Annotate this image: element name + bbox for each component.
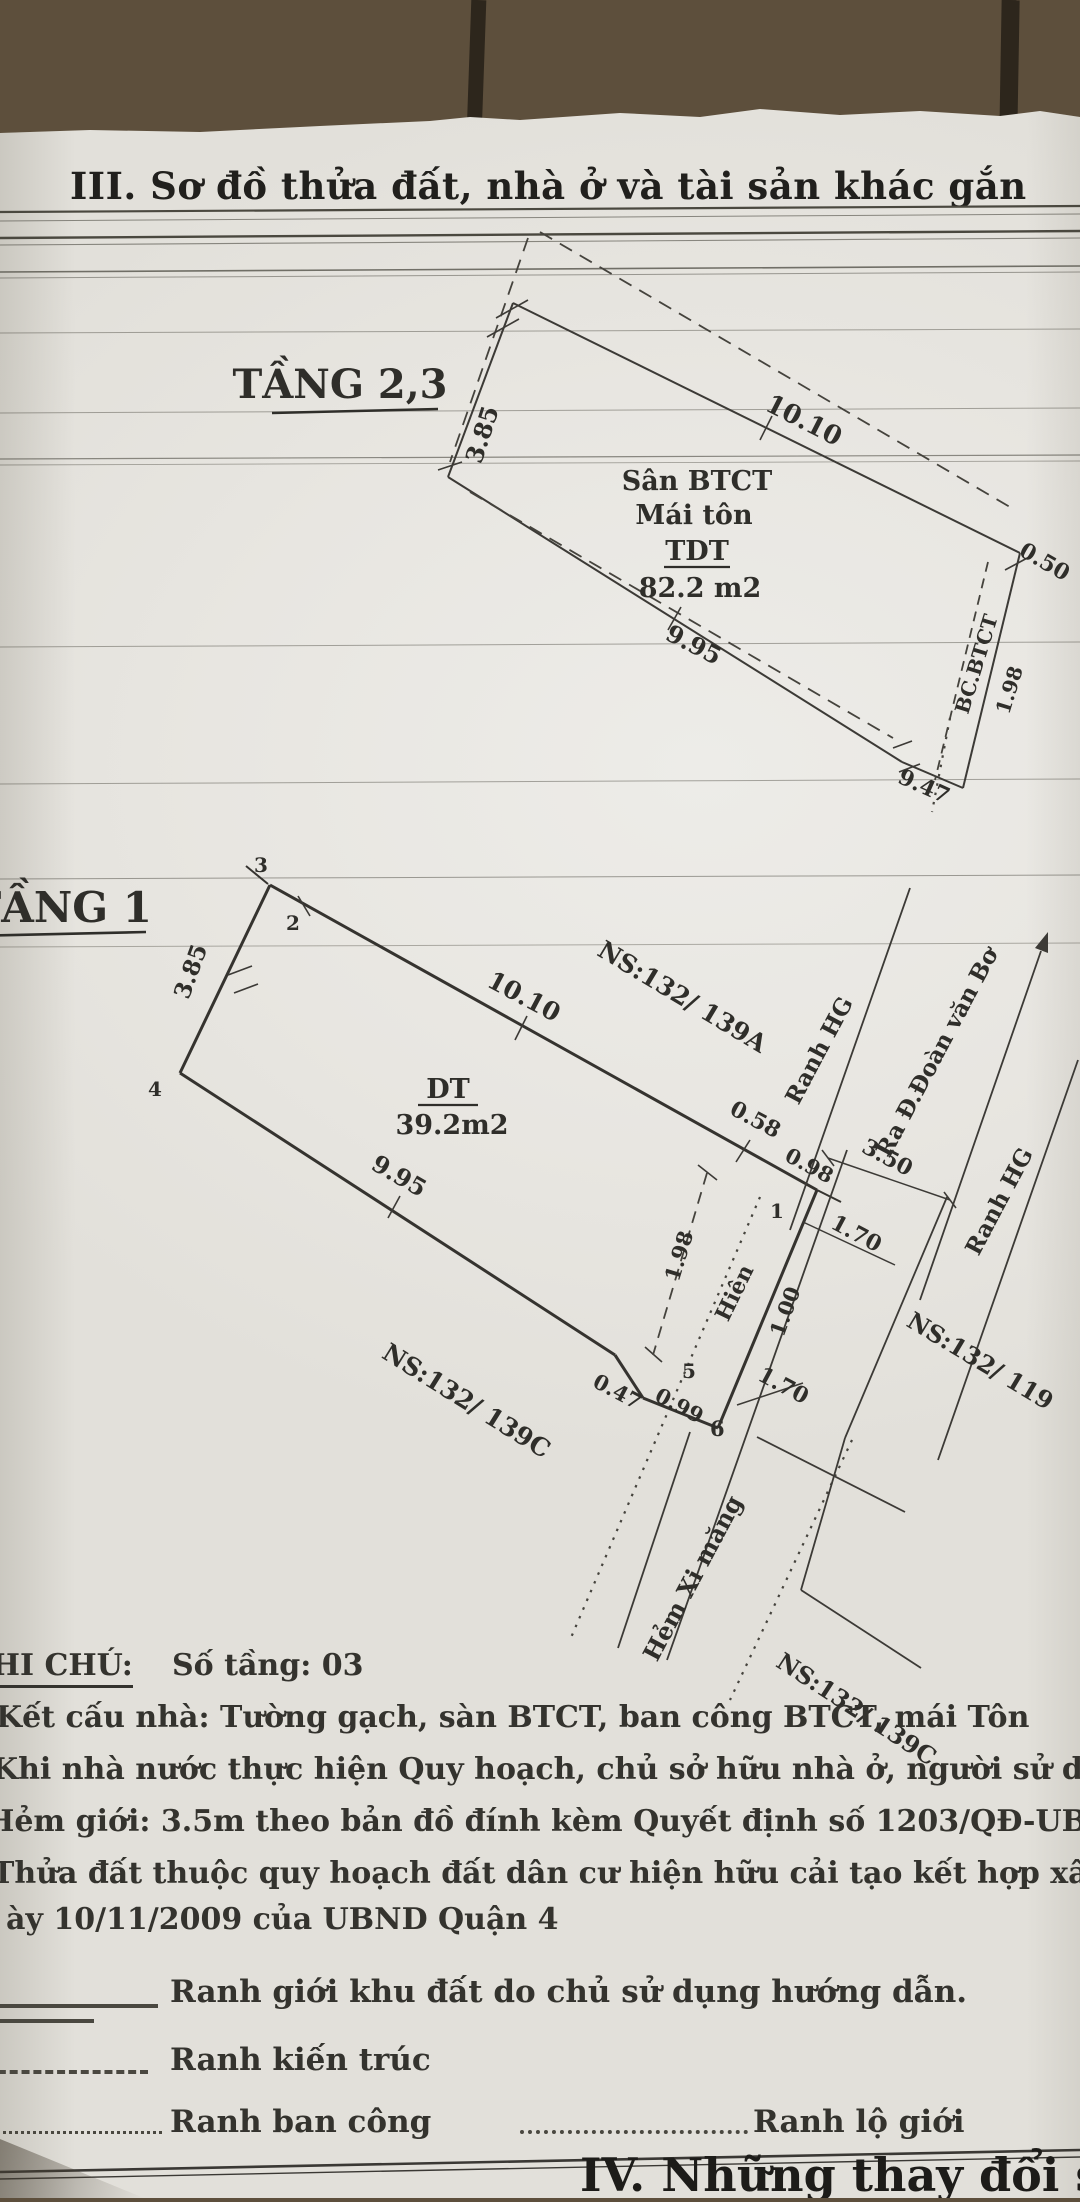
label-ra-street: Ra Đ.Đoàn văn Bơ <box>871 941 1005 1161</box>
area-value: 82.2 m2 <box>639 573 762 604</box>
dim-385: 3.85 <box>169 940 214 1002</box>
tick-marks <box>228 896 956 1362</box>
point-1: 1 <box>770 1199 784 1223</box>
point-3: 3 <box>254 853 268 877</box>
notes-line-zoning: Thửa đất thuộc quy hoạch đất dân cư hiện… <box>0 1856 1080 1891</box>
parcel-outline-solid <box>448 303 1020 788</box>
notes-floor-count: Số tầng: 03 <box>172 1648 363 1683</box>
dim-058: 0.58 <box>726 1096 786 1144</box>
notes-heading: GHI CHÚ: <box>0 1648 133 1683</box>
dim-1010: 10.10 <box>761 389 847 453</box>
dim-100: 1.00 <box>764 1283 805 1340</box>
label-alley: Hẻm Xi măng <box>637 1490 749 1665</box>
road-boundary-dotted <box>570 1197 852 1700</box>
notes-line-planning: Khi nhà nước thực hiện Quy hoạch, chủ sở… <box>0 1752 1080 1787</box>
section-iv-title: IV. Những thay đổi sau khi cấ <box>580 2148 1080 2202</box>
legend-dashed-label: Ranh kiến trúc <box>170 2042 431 2078</box>
tick-marks <box>438 300 1031 772</box>
floor-2-3-diagram: TẦNG 2,3 <box>232 232 1074 812</box>
legend-solid-line-sample <box>0 2019 94 2023</box>
floor-2-3-title: TẦNG 2,3 <box>232 356 447 408</box>
notes-line-structure: Kết cấu nhà: Tường gạch, sàn BTCT, ban c… <box>0 1700 1029 1735</box>
dim-050: 0.50 <box>1015 537 1074 586</box>
dim-995: 9.95 <box>661 618 726 670</box>
point-4: 4 <box>148 1077 162 1101</box>
surface-label-1: Sân BTCT <box>622 466 773 497</box>
floor-1-title: TẦNG 1 <box>0 876 152 932</box>
point-5: 5 <box>682 1359 696 1383</box>
legend-road-boundary-label: Ranh lộ giới <box>753 2104 965 2140</box>
area-label: DT <box>426 1074 470 1105</box>
dim-1010: 10.10 <box>483 965 566 1027</box>
label-ns-139c-side: NS:132/ 139C <box>377 1338 555 1464</box>
point-6: 6 <box>710 1416 725 1441</box>
legend-solid-label: Ranh giới khu đất do chủ sử dụng hướng d… <box>170 1974 967 2010</box>
dim-098: 0.98 <box>781 1142 838 1188</box>
label-ranh-hg-1: Ranh HG <box>780 992 859 1108</box>
label-ranh-hg-2: Ranh HG <box>960 1143 1039 1259</box>
notes-line-date: ày 10/11/2009 của UBND Quận 4 <box>6 1902 559 1937</box>
scanned-certificate-page: III. Sơ đồ thửa đất, nhà ở và tài sản kh… <box>0 0 1080 2198</box>
legend-dotted-line-sample-2 <box>520 2130 748 2134</box>
surface-label-2: Mái tôn <box>635 500 753 531</box>
legend-dotted-label: Ranh ban công <box>170 2104 431 2140</box>
dim-170-upper: 1.70 <box>827 1210 887 1258</box>
dim-099: 0.99 <box>651 1382 708 1428</box>
label-ns-139a: NS:132/ 139A <box>593 935 773 1059</box>
point-2: 2 <box>286 911 300 935</box>
area-label: TDT <box>665 536 729 567</box>
dim-198: 1.98 <box>659 1228 698 1284</box>
floor-1-diagram: TẦNG 1 <box>0 853 1078 1771</box>
house-outline-solid <box>180 866 841 1428</box>
legend-solid-line-sample <box>0 2004 158 2008</box>
label-porch: Hiên <box>710 1261 759 1326</box>
dim-198: 1.98 <box>991 663 1028 717</box>
dim-995: 9.95 <box>367 1148 432 1202</box>
dim-047: 0.47 <box>589 1368 646 1414</box>
notes-line-boundary: Hẻm giới: 3.5m theo bản đồ đính kèm Quyế… <box>0 1804 1080 1839</box>
area-value: 39.2m2 <box>395 1110 508 1141</box>
dim-170-lower: 1.70 <box>754 1362 814 1410</box>
label-ns-119: NS:132/ 119 <box>902 1306 1059 1416</box>
legend-dotted-line-sample <box>0 2131 162 2134</box>
street-direction-arrowhead <box>1035 932 1048 953</box>
legend-dashed-line-sample <box>0 2070 148 2074</box>
